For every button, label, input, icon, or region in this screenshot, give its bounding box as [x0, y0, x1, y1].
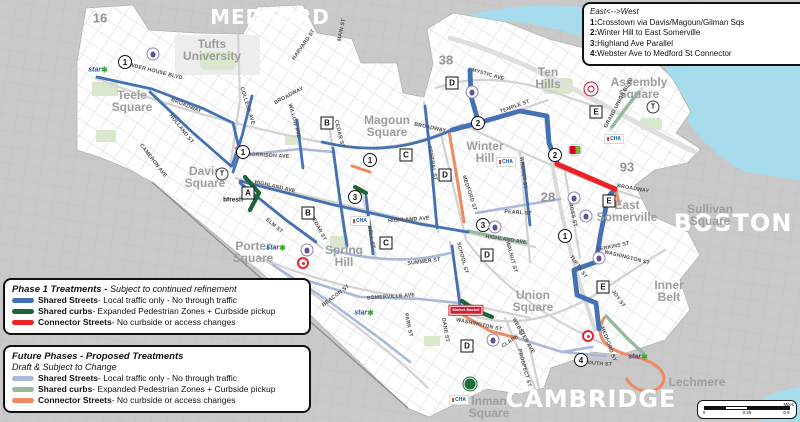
legend-item: 1: Crosstown via Davis/Magoun/Gilman Sqs	[590, 18, 800, 29]
legend-item: Connector Streets - No curbside or acces…	[12, 317, 302, 328]
scale-bar-ticks: 00.250.5	[704, 410, 790, 416]
legend-east-west-routes: East<-->West 1: Crosstown via Davis/Mago…	[582, 2, 800, 66]
legend-routes-title: East<-->West	[590, 7, 800, 18]
legend-item: 2: Winter Hill to East Somerville	[590, 28, 800, 39]
legend-item: Shared curbs - Expanded Pedestrian Zones…	[12, 384, 302, 395]
legend-phase1: Phase 1 Treatments - Subject to continue…	[3, 278, 311, 335]
legend-swatch-shared_streets	[12, 376, 34, 381]
legend-item: Shared Streets - Local traffic only - No…	[12, 373, 302, 384]
legend-phase1-items: Shared Streets - Local traffic only - No…	[12, 295, 302, 328]
scale-tick: 0.25	[743, 410, 752, 415]
legend-item: 3: Highland Ave Parallel	[590, 39, 800, 50]
legend-item: 4: Webster Ave to Medford St Connector	[590, 49, 800, 60]
somerville-shared-streets-map: MEDFORDBOSTONCAMBRIDGETuftsUniversityTee…	[0, 0, 800, 422]
legend-phase1-title: Phase 1 Treatments -	[12, 284, 110, 295]
legend-item: Shared curbs - Expanded Pedestrian Zones…	[12, 306, 302, 317]
legend-future-title: Future Phases - Proposed Treatments	[12, 351, 302, 362]
legend-item: Shared Streets - Local traffic only - No…	[12, 295, 302, 306]
legend-future-subtitle: Draft & Subject to Change	[12, 362, 302, 373]
scale-tick: 0.5	[783, 410, 789, 415]
legend-swatch-shared_curbs	[12, 309, 34, 314]
legend-future: Future Phases - Proposed Treatments Draf…	[3, 345, 311, 413]
legend-phase1-subtitle: Subject to continued refinement	[110, 284, 237, 294]
scale-bar: Miles 00.250.5	[697, 400, 797, 419]
legend-routes-items: 1: Crosstown via Davis/Magoun/Gilman Sqs…	[590, 18, 800, 60]
legend-swatch-connector	[12, 320, 34, 325]
scale-tick: 0	[703, 410, 706, 415]
legend-swatch-shared_curbs	[12, 387, 34, 392]
legend-swatch-shared_streets	[12, 298, 34, 303]
legend-future-items: Shared Streets - Local traffic only - No…	[12, 373, 302, 406]
legend-item: Connector Streets - No curbside or acces…	[12, 395, 302, 406]
legend-swatch-connector	[12, 398, 34, 403]
